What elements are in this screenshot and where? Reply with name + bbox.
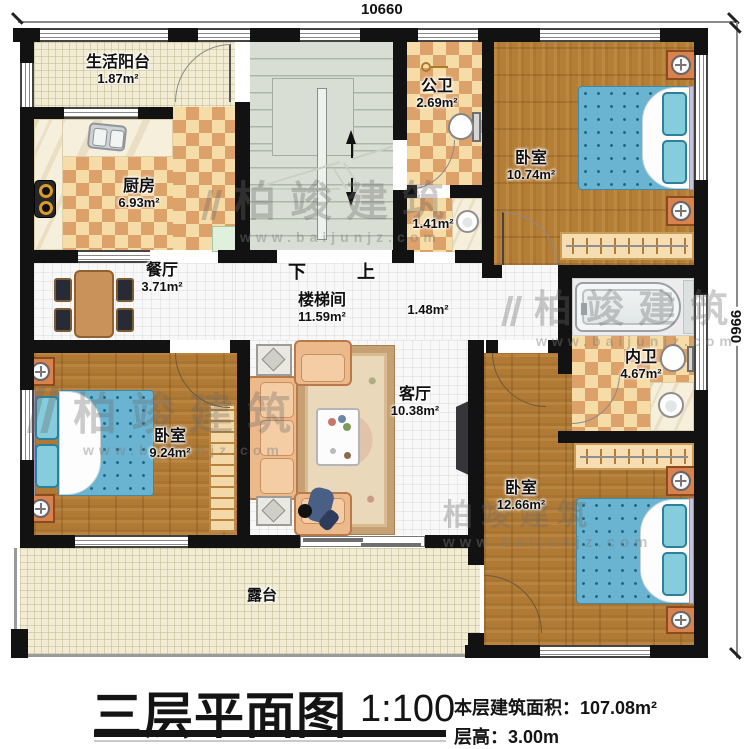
room-area: 1.41m² bbox=[412, 217, 453, 232]
person-figure bbox=[296, 486, 342, 532]
flower-icon bbox=[343, 423, 351, 431]
table-item bbox=[344, 452, 351, 459]
sofa-cushion bbox=[301, 354, 345, 382]
watermark: 柏竣建筑 www.baijunjz.com bbox=[500, 278, 742, 349]
wall bbox=[138, 107, 173, 119]
room-label-hallway: 1.48m² bbox=[407, 303, 448, 318]
room-name: 内卫 bbox=[620, 349, 661, 367]
towel-bar bbox=[431, 66, 448, 68]
towel-ring-icon bbox=[421, 62, 431, 72]
window bbox=[40, 28, 168, 42]
title-underline bbox=[94, 730, 446, 737]
wall bbox=[694, 390, 708, 658]
coffee-table bbox=[316, 408, 360, 466]
room-name: 公卫 bbox=[416, 78, 457, 96]
nightstand bbox=[666, 466, 696, 496]
room-name: 生活阳台 bbox=[86, 54, 150, 72]
watermark-url: www.baijunjz.com bbox=[536, 333, 742, 349]
table-item bbox=[330, 448, 336, 454]
room-area: 11.59m² bbox=[298, 310, 346, 325]
room-label-bedroom-se: 卧室 12.66m² bbox=[497, 480, 545, 512]
terrace-railing bbox=[14, 654, 480, 657]
room-name: 餐厅 bbox=[141, 262, 182, 280]
side-table bbox=[256, 496, 292, 526]
nightstand bbox=[666, 196, 696, 226]
floor-area-value: 107.08m² bbox=[580, 698, 657, 718]
toilet-tank bbox=[687, 346, 694, 372]
wall bbox=[230, 340, 250, 353]
dining-table bbox=[74, 270, 114, 338]
hangers-icon bbox=[566, 238, 688, 254]
stair-down-label: 下 bbox=[288, 258, 306, 284]
toilet bbox=[448, 113, 474, 140]
sliding-door-panel bbox=[361, 543, 421, 547]
dimension-width: 10660 bbox=[358, 1, 406, 18]
room-name: 卧室 bbox=[507, 150, 555, 168]
dining-chair bbox=[54, 308, 72, 332]
sink-basin bbox=[92, 128, 108, 147]
room-area: 4.67m² bbox=[620, 367, 661, 382]
table-lamp-icon bbox=[261, 347, 285, 371]
floor-plan-page: 10660 9960 bbox=[0, 0, 750, 749]
room-name: 卧室 bbox=[497, 480, 545, 498]
room-name: 卧室 bbox=[149, 428, 190, 446]
watermark-logo-icon bbox=[500, 296, 526, 326]
wall bbox=[478, 28, 540, 42]
window bbox=[75, 535, 188, 548]
wall bbox=[468, 633, 484, 658]
wall bbox=[20, 340, 170, 353]
room-area: 12.66m² bbox=[497, 498, 545, 513]
stove bbox=[34, 180, 56, 218]
watermark-url: www.baijunjz.com bbox=[443, 534, 652, 551]
room-label-living-balcony: 生活阳台 1.87m² bbox=[86, 54, 150, 86]
wall bbox=[168, 28, 198, 42]
stair-up-label: 上 bbox=[357, 258, 375, 284]
floor-height-value: 3.00m bbox=[508, 727, 559, 747]
room-label-public-bath: 公卫 2.69m² bbox=[416, 78, 457, 110]
wash-basin bbox=[658, 392, 684, 418]
pillow bbox=[662, 504, 687, 548]
table-lamp-icon bbox=[671, 201, 691, 221]
room-label-living-room: 客厅 10.38m² bbox=[391, 386, 439, 418]
wall bbox=[34, 107, 64, 119]
window bbox=[540, 645, 650, 658]
room-label-dining: 餐厅 3.71m² bbox=[141, 262, 182, 294]
wall bbox=[20, 535, 75, 548]
floor-height-label: 层高： bbox=[454, 727, 508, 747]
pillow bbox=[662, 140, 687, 184]
sink-basin bbox=[109, 129, 125, 148]
wall bbox=[20, 250, 78, 263]
flower-icon bbox=[338, 415, 346, 423]
watermark: 柏竣建筑 www.baijunjz.com bbox=[200, 168, 458, 245]
wall bbox=[482, 42, 494, 265]
room-area: 1.48m² bbox=[407, 303, 448, 318]
stair-landing bbox=[272, 78, 354, 156]
sofa-cushion bbox=[260, 458, 294, 494]
window bbox=[540, 28, 660, 42]
pillow bbox=[662, 92, 687, 136]
dining-chair bbox=[116, 278, 134, 302]
watermark-brand: 柏竣建筑 bbox=[534, 289, 742, 331]
wall bbox=[250, 28, 300, 42]
room-area: 9.24m² bbox=[149, 446, 190, 461]
floor-height-line: 层高：3.00m bbox=[454, 723, 559, 749]
wash-basin bbox=[456, 210, 479, 233]
wall bbox=[482, 265, 502, 278]
stair-arrow-stem bbox=[351, 142, 353, 158]
room-area: 10.38m² bbox=[391, 404, 439, 419]
stove-burner-icon bbox=[39, 184, 53, 198]
room-area: 3.71m² bbox=[141, 280, 182, 295]
table-lamp-icon bbox=[671, 55, 691, 75]
plan-title: 三层平面图 bbox=[92, 676, 347, 748]
wall bbox=[694, 28, 708, 55]
room-label-bedroom-ne: 卧室 10.74m² bbox=[507, 150, 555, 182]
sliding-door-panel bbox=[303, 538, 363, 542]
room-label-terrace: 露台 bbox=[247, 588, 277, 605]
watermark: 柏竣建筑 www.baijunjz.com bbox=[443, 490, 652, 551]
dining-chair bbox=[116, 308, 134, 332]
window bbox=[300, 28, 360, 42]
title-underline-shadow bbox=[94, 740, 446, 742]
room-label-bedroom-w: 卧室 9.24m² bbox=[149, 428, 190, 460]
nightstand bbox=[666, 50, 696, 80]
room-label-inner-bath: 内卫 4.67m² bbox=[620, 349, 661, 381]
kitchen-sink bbox=[87, 122, 128, 152]
room-area: 2.69m² bbox=[416, 96, 457, 111]
watermark-logo-icon bbox=[200, 190, 226, 220]
pillow bbox=[662, 552, 687, 596]
floor-area-line: 本层建筑面积：107.08m² bbox=[454, 694, 657, 720]
wall bbox=[486, 340, 498, 353]
room-name: 厨房 bbox=[118, 178, 159, 196]
table-lamp-icon bbox=[671, 611, 691, 629]
room-name: 客厅 bbox=[391, 386, 439, 404]
wall bbox=[235, 250, 277, 263]
wall bbox=[558, 431, 694, 443]
table-lamp-icon bbox=[671, 471, 691, 491]
room-label-bath-lobby: 1.41m² bbox=[412, 217, 453, 232]
terrace-post bbox=[11, 629, 28, 658]
room-area: 1.87m² bbox=[86, 72, 150, 87]
window bbox=[694, 55, 708, 180]
flower-icon bbox=[328, 418, 336, 426]
sliding-door bbox=[300, 536, 425, 547]
window bbox=[64, 107, 138, 119]
window bbox=[78, 250, 150, 263]
wall bbox=[360, 28, 418, 42]
room-label-kitchen: 厨房 6.93m² bbox=[118, 178, 159, 210]
window bbox=[418, 28, 478, 42]
room-name: 露台 bbox=[247, 588, 277, 605]
nightstand bbox=[666, 606, 696, 634]
wall bbox=[188, 535, 300, 548]
side-table bbox=[256, 344, 292, 376]
room-label-stairwell: 楼梯间 11.59m² bbox=[298, 292, 346, 324]
dining-chair bbox=[54, 278, 72, 302]
wall bbox=[393, 42, 407, 140]
wall bbox=[558, 265, 708, 278]
person-head bbox=[298, 504, 312, 518]
plan-scale: 1:100 bbox=[360, 688, 455, 731]
stove-burner-icon bbox=[39, 201, 53, 215]
watermark-logo-icon bbox=[25, 387, 65, 433]
dimension-line-top bbox=[18, 21, 736, 23]
room-name: 楼梯间 bbox=[298, 292, 346, 310]
window bbox=[198, 28, 250, 42]
table-lamp-icon bbox=[261, 498, 285, 522]
dimension-tick bbox=[11, 12, 23, 24]
hangers-icon bbox=[580, 449, 688, 464]
wall bbox=[650, 645, 708, 658]
watermark-url: www.baijunjz.com bbox=[83, 442, 305, 458]
room-area: 10.74m² bbox=[507, 168, 555, 183]
room-area: 6.93m² bbox=[118, 196, 159, 211]
wall bbox=[20, 28, 34, 63]
floor-area-label: 本层建筑面积： bbox=[454, 698, 580, 718]
wardrobe-hanger-rack bbox=[560, 232, 694, 260]
window bbox=[20, 63, 34, 107]
wall bbox=[455, 250, 482, 263]
